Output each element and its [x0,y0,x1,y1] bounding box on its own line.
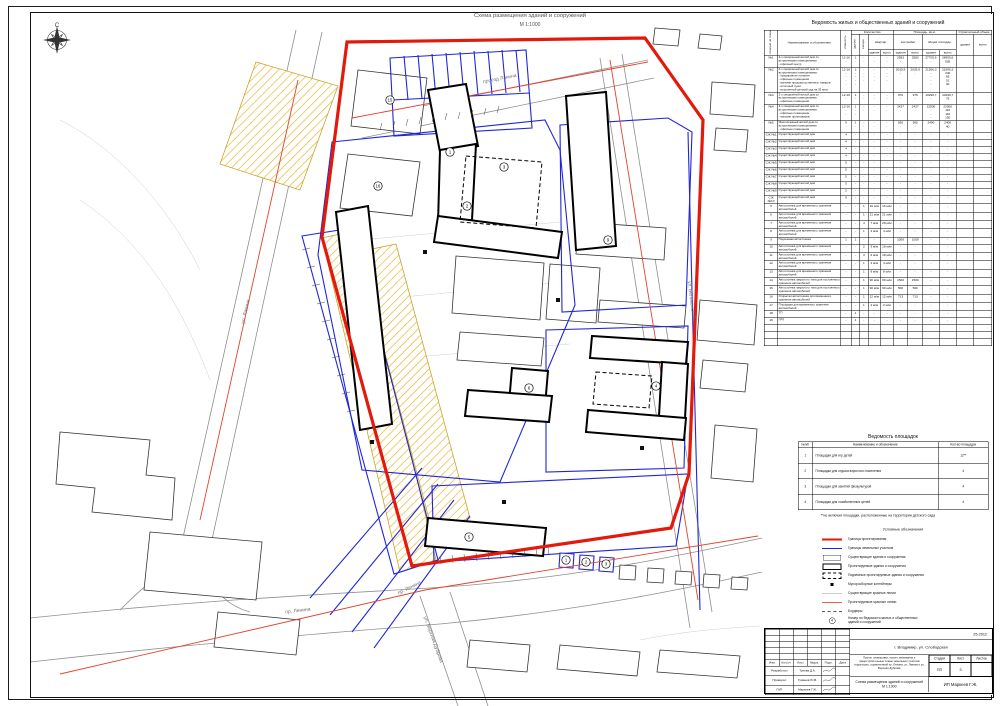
sheets-value [971,663,992,677]
table-cell: - [939,174,956,181]
table-cell: - [851,278,859,286]
table-cell: - [851,244,859,252]
table-cell [974,229,992,237]
table-cell: - [841,244,851,252]
table-cell: - [939,311,956,318]
table-cell: - [923,253,940,261]
table-cell: - [860,237,868,244]
table-cell [923,332,940,339]
table-cell: - [851,221,859,229]
table-cell: 2583 - [908,55,923,67]
table-row: 7Автостоянка для временного хранения авт… [764,221,992,229]
table-cell: - [881,139,894,146]
table-cell [956,253,974,261]
building-name-cell: Автостоянка для временного хранения авто… [778,204,841,212]
table-cell [956,303,974,311]
building-name-cell: Автостоянка для временного хранения авто… [778,269,841,277]
table-cell: - [923,303,940,311]
table-cell: - [908,188,923,195]
table-row: №14-х секционный жилой дом со встроенным… [764,55,992,67]
table-cell: - [868,237,881,244]
table-cell [974,67,992,92]
table-cell: 2 [860,244,868,252]
table-cell [841,325,851,332]
legend-item-label: Существующие красные линии [848,591,990,595]
table-cell: 1 [860,261,868,269]
table-cell: 1 - - - - [851,67,859,92]
table-cell: 976 - [908,93,923,105]
table-cell: 5 [841,181,851,188]
table-cell: 4 [860,221,868,229]
signature-icon [822,677,836,683]
table-cell: - [860,318,868,325]
table-cell: - [868,160,881,167]
table-cell: - [893,229,908,237]
table-cell [956,286,974,294]
table-cell: 1059 [908,237,923,244]
table-cell: - - [868,120,881,132]
table-cell [956,332,974,339]
table-row: 10Автостоянка для временного хранения ав… [764,244,992,252]
table-row: СЖ №10Существующий жилой дом9-------- [764,195,992,204]
table-cell [868,332,881,339]
table-cell: 2 м/м [868,303,881,311]
table-cell: - [908,174,923,181]
table-cell [956,104,974,120]
stamp-role-row: ПроверилГуманов Ю.В. [765,676,850,686]
table-cell: - - [881,120,894,132]
table-cell: 1 - [851,93,859,105]
col-header-total-area: общая площадь [923,34,957,49]
table-cell: - [893,139,908,146]
table-cell: 2035,9 - [893,67,908,92]
table-cell: - [939,221,956,229]
table-cell: 28 м/м [881,221,894,229]
legend-item-label: Мусоросборные контейнеры [848,582,990,586]
table-cell: - [868,167,881,174]
table-cell: 1 - [851,55,859,67]
table-cell: 565 - [908,120,923,132]
table-cell: 18 м/м [881,244,894,252]
legend-swatch [822,548,842,549]
table-cell: - [923,174,940,181]
building-name-cell: Открытая автостоянка для временного хран… [778,294,841,302]
table-cell: - [893,212,908,220]
table-cell [956,55,974,67]
table-cell: - [939,318,956,325]
legend-swatch [831,583,834,586]
table-cell: - [923,146,940,153]
table-cell: - [851,153,859,160]
table-cell: - [868,311,881,318]
building-name-cell: Многоэтажный жилой дом со встроенными по… [778,120,841,132]
table-row [764,325,992,332]
table-cell: - [908,181,923,188]
table-cell: 4 [938,494,988,510]
table-cell: - [851,294,859,302]
building-name-cell: ТП [778,311,841,318]
table-row: 19ГРП-1------- [764,318,992,325]
table-cell: 5 [841,160,851,167]
building-name-cell: 3-х секционный жилой дом со встроенными … [778,104,841,120]
role-name: Тунева Д.А. [793,666,821,676]
table-cell: 2 м/м [881,303,894,311]
table-cell: - [868,139,881,146]
role-name: Маркеев Г.Ж. [793,685,821,695]
table-cell [956,132,974,139]
table-cell: - [923,153,940,160]
table-cell [974,261,992,269]
table-row: СЖ №3Существующий жилой дом4-------- [764,146,992,153]
table-cell [956,167,974,174]
table-cell: 4 [798,494,812,510]
table-cell: - [908,212,923,220]
table-cell: Площадки для хозяйственных целей [812,494,938,510]
table-cell: - - [860,120,868,132]
table-cell: - [860,174,868,181]
signature [822,666,836,676]
table-cell: 500 [908,286,923,294]
table-cell [764,339,778,346]
stamp-col-header: Лист [793,659,807,666]
table-cell [956,278,974,286]
table-cell: - [939,286,956,294]
legend-item: 4Номер по Ведомости жилых и общественных… [816,617,990,625]
legend-swatch [823,555,841,561]
table-cell [908,339,923,346]
table-cell: СЖ №4 [764,153,778,160]
stage-value: ПП [929,663,950,677]
table-cell: - [851,174,859,181]
table-cell: 16 м/м [868,204,881,212]
table-cell [974,318,992,325]
table-cell: - [841,318,851,325]
table-cell [974,253,992,261]
table-cell: - [881,188,894,195]
table-cell: - [939,160,956,167]
legend-item: Граница проектирования [816,536,990,544]
table-cell: - [939,261,956,269]
building-name-cell: Существующий жилой дом [778,167,841,174]
legend-item-label: Номер по Ведомости жилых и общественных … [848,617,990,625]
table-cell: - [893,269,908,277]
legend-swatch [823,572,842,579]
table-cell: - [908,269,923,277]
table-cell: 14 [764,278,778,286]
table-cell: - [868,181,881,188]
table-cell: 12-16 - [841,55,851,67]
stamp-col-header: Подп. [822,659,836,666]
table-cell: - - [860,55,868,67]
table-cell: - [908,139,923,146]
table-cell: - [881,167,894,174]
building-name-cell: Автостоянка для временного хранения авто… [778,244,841,252]
table-cell: - [908,132,923,139]
table-cell: - [908,195,923,204]
table-cell: - [923,244,940,252]
signature [822,676,836,686]
table-cell: 18 м/м [881,253,894,261]
table-cell: 21506,3 - - - - [923,67,940,92]
table-cell: 5 [841,174,851,181]
table-cell: - [841,212,851,220]
table-cell [778,332,841,339]
table-row: 9Подземная автостоянка11---10591059-- [764,237,992,244]
table-cell: - [893,261,908,269]
table-cell: - [893,303,908,311]
table-cell: - [893,188,908,195]
table-cell [956,146,974,153]
table-cell [956,318,974,325]
table-cell: - [908,160,923,167]
legend-item: Проектируемые красные линии [816,599,990,607]
col-header-built: застройки [893,34,922,49]
table-cell [974,269,992,277]
table-row: СЖ №5Существующий жилой дом5-------- [764,160,992,167]
table-cell [956,237,974,244]
table-cell [974,146,992,153]
table-cell: - [939,244,956,252]
table-row: 8Автостоянка для временного хранения авт… [764,229,992,237]
table-row [764,332,992,339]
table-cell: 1 [860,212,868,220]
table-cell [956,174,974,181]
building-name-cell: Автостоянка для временного хранения авто… [778,229,841,237]
legend-item: Бордюры [816,608,990,616]
table-cell: 4 [938,479,988,495]
legend-item-label: Проектируемые здания и сооружения [848,564,990,568]
stamp-header-row: Изм.Кол.уч.Лист№док.Подп.Дата [765,659,850,666]
table-cell: - [908,244,923,252]
building-name-cell: Существующий жилой дом [778,139,841,146]
table-cell [974,132,992,139]
table-row: 4Площадки для хозяйственных целей4 [798,494,988,510]
table-cell: 90 м/м [881,286,894,294]
table-cell: - [851,261,859,269]
table-cell [974,55,992,67]
table-cell: - [851,212,859,220]
table-row: 11Автостоянка для временного хранения ав… [764,253,992,261]
table-cell: 1 [798,448,812,464]
project-number: 25-2012 [850,629,992,640]
col-header-unit: всего [974,34,992,55]
table-row: 5Автостоянка для временного хранения авт… [764,204,992,212]
table-cell: - - [881,104,894,120]
table-cell: 5 [764,204,778,212]
table-cell [974,325,992,332]
buildings-table-title: Ведомость жилых и общественных зданий и … [764,20,992,26]
signature-icon [822,687,836,693]
table-cell [956,181,974,188]
table-cell: - [893,153,908,160]
table-cell: - [851,204,859,212]
table-cell: - [860,160,868,167]
table-cell: - [860,195,868,204]
table-cell: - [841,303,851,311]
table-cell: 16 [764,294,778,302]
table-cell [956,67,974,92]
table-cell: 1059 [893,237,908,244]
signature-icon [822,668,836,674]
table-cell: - [841,229,851,237]
table-row: 17Площадка для временного хранения автом… [764,303,992,311]
table-cell: - [868,132,881,139]
table-cell: - [860,146,868,153]
table-cell: 1 [860,204,868,212]
table-cell: - [881,153,894,160]
table-cell: №3 [764,93,778,105]
table-cell: 9 [841,195,851,204]
table-cell [974,204,992,212]
table-cell: 18 [764,311,778,318]
table-cell: - [881,181,894,188]
table-cell: - - [860,93,868,105]
table-cell [956,294,974,302]
table-cell [881,325,894,332]
table-cell: - [841,221,851,229]
table-row [764,339,992,346]
table-cell: 9 м/м [868,244,881,252]
table-cell: 10296,7 - [923,93,940,105]
signature-date [836,685,850,695]
table-cell [956,153,974,160]
table-cell: - [908,153,923,160]
stage-label: Стадия [929,655,950,663]
table-cell: - [923,318,940,325]
rect-thick-symbol-icon [816,563,848,570]
table-cell: - - [881,55,894,67]
building-name-cell: Существующий жилой дом [778,174,841,181]
table-row: 2Площадки для отдыха взрослого населения… [798,463,988,479]
table-cell: 13 [764,269,778,277]
table-cell: - - [860,104,868,120]
table-cell: - - [881,93,894,105]
legend-item-label: Существующие здания и сооружения [848,555,990,559]
table-cell: - [851,167,859,174]
blue-line-symbol-icon [816,548,848,549]
table-cell: - [939,269,956,277]
table-cell: 4 [938,463,988,479]
table-cell [974,278,992,286]
legend-item-label: Проектируемые красные линии [848,600,990,604]
table-cell: - [939,294,956,302]
table-cell: 12-16 - - - - [841,67,851,92]
table-cell: СЖ №2 [764,139,778,146]
table-cell: - [923,212,940,220]
table-cell: 11 [764,253,778,261]
table-cell: 21 м/м [881,212,894,220]
col-header-sec: Секций [860,34,868,55]
table-cell [974,174,992,181]
col-header-apt: квартир [868,34,893,49]
table-row: СЖ №9Существующий жилой дом2-------- [764,188,992,195]
red-thick-symbol-icon [816,539,848,541]
table-cell: - [939,132,956,139]
table-cell [956,195,974,204]
stamp-col-header: №док. [807,659,821,666]
table-cell [956,261,974,269]
building-name-cell: Существующий жилой дом [778,160,841,167]
table-cell: - [860,132,868,139]
table-cell [923,339,940,346]
table-cell [860,339,868,346]
table-row: 16Открытая автостоянка для временного хр… [764,294,992,302]
table-cell: - [841,253,851,261]
table-cell [974,294,992,302]
stamp-col-header: Кол.уч. [779,659,793,666]
table-cell [939,339,956,346]
table-cell: - [881,160,894,167]
table-cell: - [881,132,894,139]
table-cell [881,332,894,339]
table-cell: 2400 40 [939,120,956,132]
table-cell [956,311,974,318]
building-name-cell: 2-х секционный жилой дом со встроенными … [778,93,841,105]
table-cell: - [939,153,956,160]
table-cell: - [860,139,868,146]
table-cell: - [908,229,923,237]
table-cell: - [939,212,956,220]
sheet-value: 3 [950,663,971,677]
table-cell: - [893,253,908,261]
table-cell: - [841,269,851,277]
table-cell [974,332,992,339]
table-cell [956,93,974,105]
table-cell: СЖ №9 [764,188,778,195]
table-cell: 2427 - [893,104,908,120]
table-cell: - [851,253,859,261]
table-cell: - [923,311,940,318]
building-name-cell: Автостоянка для временного хранения авто… [778,261,841,269]
table-cell: - - [868,55,881,67]
table-cell: - [923,278,940,286]
table-cell [841,332,851,339]
building-name-cell: Автостоянка для временного хранения авто… [778,212,841,220]
col-header-floors: Этажность [841,30,851,55]
table-cell: - [881,318,894,325]
table-cell: - [939,253,956,261]
table-cell: - [908,318,923,325]
table-cell: 90 м/м [881,278,894,286]
table-cell: - [851,269,859,277]
table-cell: - [939,237,956,244]
table-cell: 6 [764,212,778,220]
table-cell: - [893,318,908,325]
table-cell: СЖ №10 [764,195,778,204]
table-cell: 2427 - [908,104,923,120]
table-cell: - [893,132,908,139]
table-cell: - [893,204,908,212]
table-cell: - [851,139,859,146]
table-cell: 15 [764,286,778,294]
table-cell: - [868,188,881,195]
table-cell [893,339,908,346]
table-cell: 2 [798,463,812,479]
table-cell: 90 м/м [868,278,881,286]
table-cell: 565 - [893,120,908,132]
table-cell: - [868,195,881,204]
table-cell [974,93,992,105]
table-cell [974,160,992,167]
buildings-table: Позиция на плане Наименование и обозначе… [764,30,992,346]
table-cell: 4 м/м [881,229,894,237]
table-cell: 2400 - [923,120,940,132]
table-cell: - [923,139,940,146]
table-cell: - [860,181,868,188]
table-cell [893,325,908,332]
table-cell: 1500 [908,278,923,286]
table-cell [778,325,841,332]
